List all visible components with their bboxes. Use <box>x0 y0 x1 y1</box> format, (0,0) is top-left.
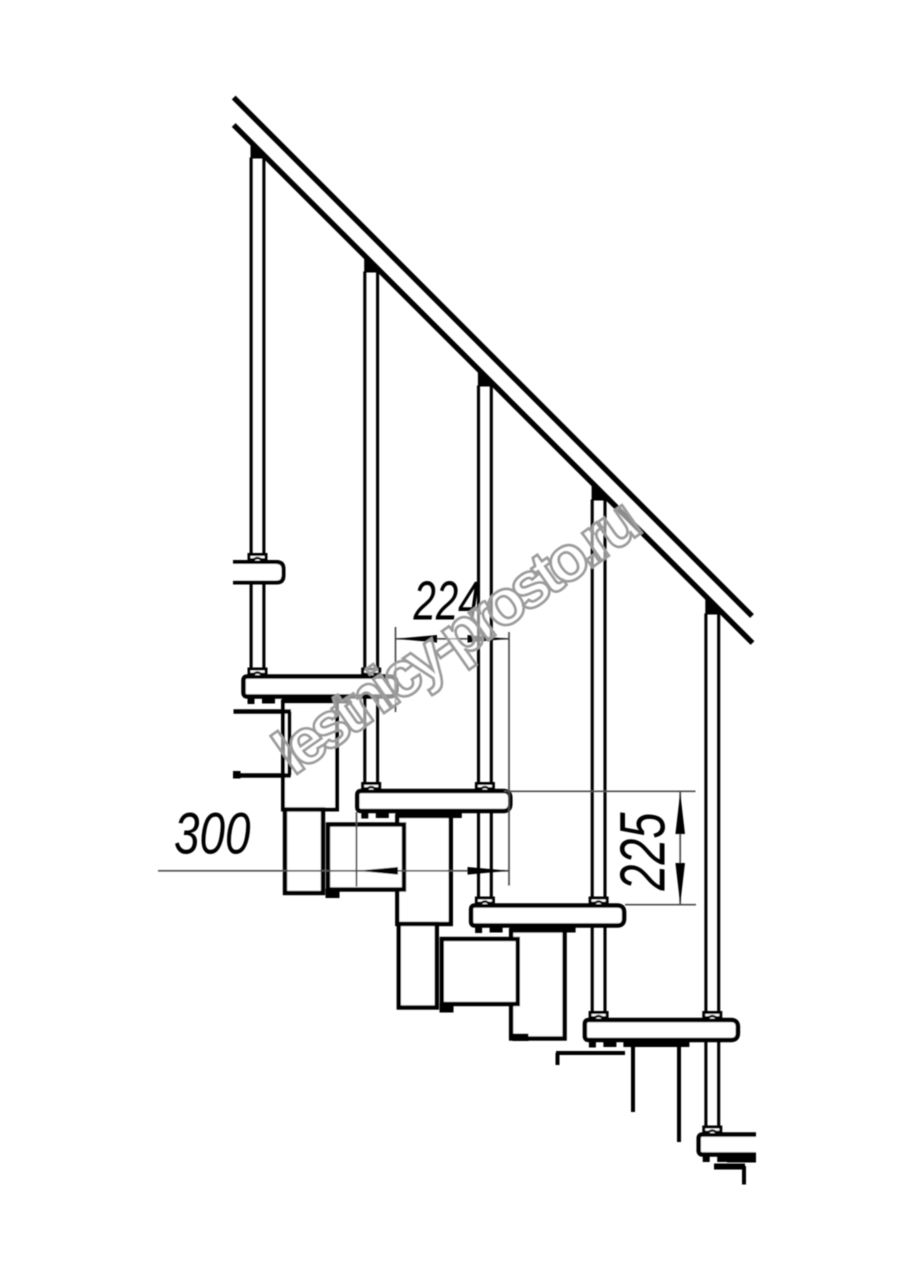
svg-text:225: 225 <box>606 812 678 891</box>
svg-text:300: 300 <box>174 802 250 866</box>
